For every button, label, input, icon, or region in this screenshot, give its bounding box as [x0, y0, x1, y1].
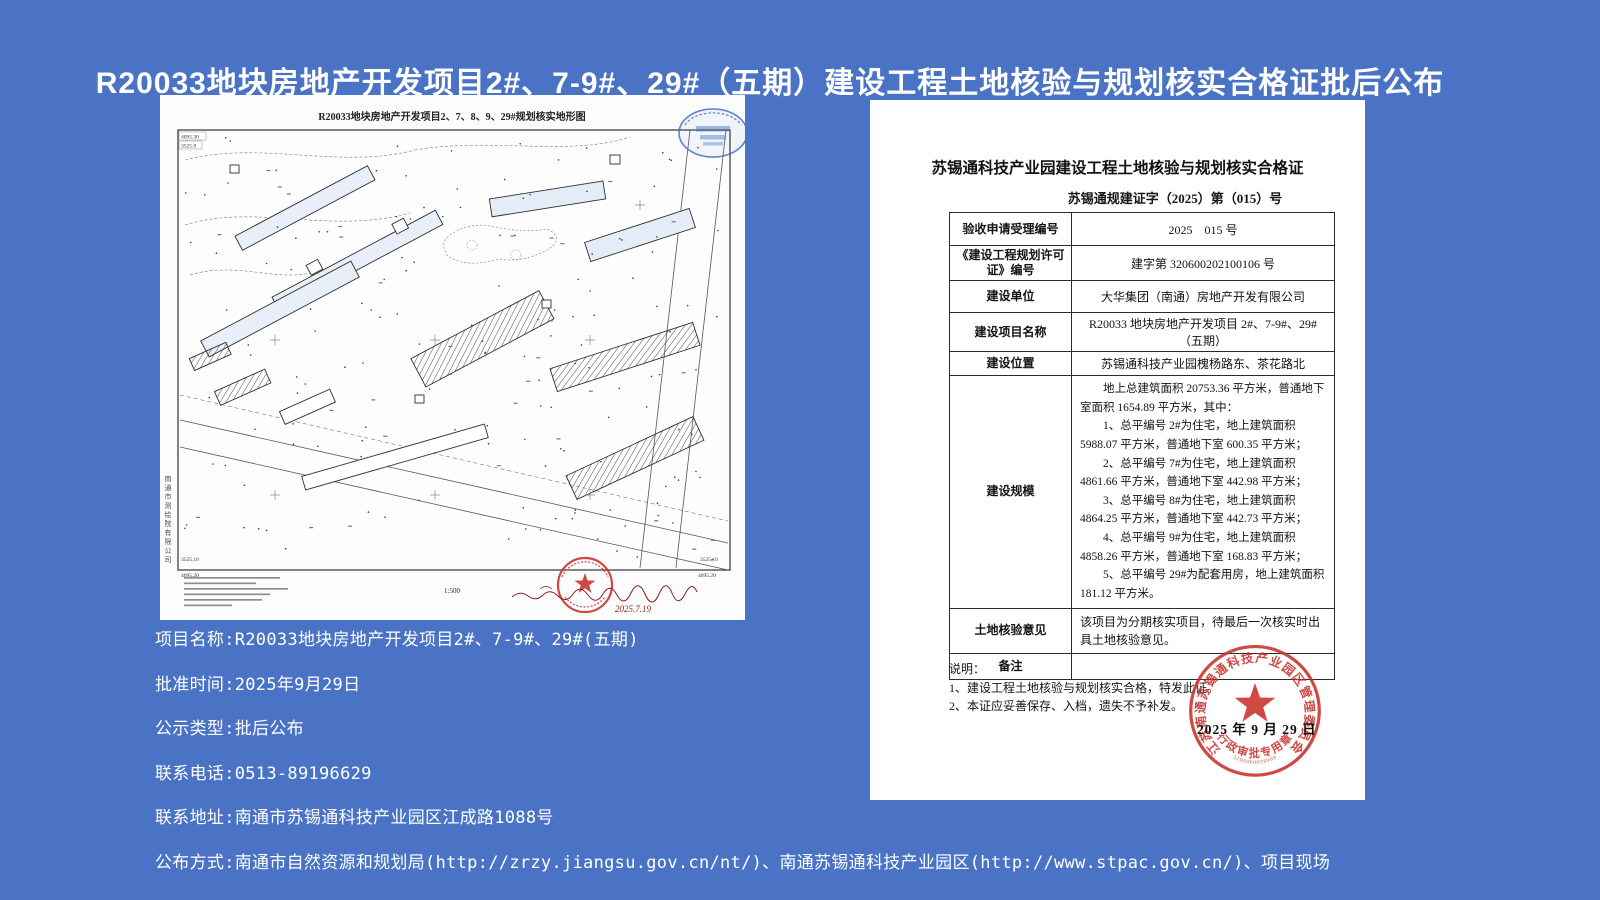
table-row: 建设规模 地上总建筑面积 20753.36 平方米，普通地下室面积 1654.8…	[950, 376, 1335, 609]
handwriting-note	[512, 586, 697, 602]
row-value: 2025 015 号	[1072, 213, 1335, 246]
scale-line: 2、总平编号 7#为住宅，地上建筑面积 4861.66 平方米，普通地下室 44…	[1080, 455, 1326, 492]
info-line-publish-channels: 公布方式:南通市自然资源和规划局(http://zrzy.jiangsu.gov…	[155, 848, 1455, 873]
table-row: 建设位置 苏锡通科技产业园槐杨路东、茶花路北	[950, 352, 1335, 376]
info-line-approval-date: 批准时间:2025年9月29日	[155, 670, 1455, 695]
row-value: 大华集团（南通）房地产开发有限公司	[1072, 281, 1335, 313]
svg-text:4095.20: 4095.20	[698, 573, 716, 579]
info-line-notice-type: 公示类型:批后公布	[155, 714, 1455, 739]
row-label: 建设单位	[950, 281, 1072, 313]
svg-text:3525.10: 3525.10	[700, 557, 718, 563]
scale-line: 5、总平编号 29#为配套用房，地上建筑面积 181.12 平方米。	[1080, 566, 1326, 603]
certificate-table: 验收申请受理编号 2025 015 号 《建设工程规划许可证》编号 建字第 32…	[949, 212, 1335, 680]
handwriting-date: 2025.7.19	[615, 604, 652, 614]
table-row: 建设单位 大华集团（南通）房地产开发有限公司	[950, 281, 1335, 313]
map-scale-label: 1:500	[444, 587, 460, 595]
info-line-phone: 联系电话:0513-89196629	[155, 759, 1455, 784]
row-value: R20033 地块房地产开发项目 2#、7-9#、29#（五期）	[1072, 313, 1335, 352]
table-row: 验收申请受理编号 2025 015 号	[950, 213, 1335, 246]
scale-line: 4、总平编号 9#为住宅，地上建筑面积 4858.26 平方米，普通地下室 16…	[1080, 529, 1326, 566]
site-plan-drawing: R20033地块房地产开发项目2、7、8、9、29#规划核实地形图	[160, 95, 745, 620]
scale-line: 3、总平编号 8#为住宅，地上建筑面积 4864.25 平方米，普通地下室 44…	[1080, 492, 1326, 529]
row-value: 苏锡通科技产业园槐杨路东、茶花路北	[1072, 352, 1335, 376]
certificate-title: 苏锡通科技产业园建设工程土地核验与规划核实合格证	[870, 156, 1365, 178]
row-label: 建设项目名称	[950, 313, 1072, 352]
certificate-number: 苏锡通规建证字（2025）第（015）号	[1010, 188, 1340, 207]
announcement-page: { "page": { "title": "R20033地块房地产开发项目2#、…	[0, 0, 1600, 900]
scale-line: 1、总平编号 2#为住宅，地上建筑面积 5988.07 平方米，普通地下室 60…	[1080, 417, 1326, 454]
site-plan-image: R20033地块房地产开发项目2、7、8、9、29#规划核实地形图	[160, 95, 745, 620]
info-line-project-name: 项目名称:R20033地块房地产开发项目2#、7-9#、29#(五期)	[155, 625, 1455, 650]
row-value: 建字第 320600202100106 号	[1072, 246, 1335, 281]
table-row: 《建设工程规划许可证》编号 建字第 320600202100106 号	[950, 246, 1335, 281]
row-label: 《建设工程规划许可证》编号	[950, 246, 1072, 281]
row-label: 建设位置	[950, 352, 1072, 376]
svg-text:4095.30: 4095.30	[181, 135, 199, 141]
row-label: 建设规模	[950, 376, 1072, 609]
legend-notes	[184, 577, 288, 606]
surveyor-stamp-blue-icon	[679, 109, 745, 157]
surveyor-company-label: 南通市测绘院有限公司	[163, 475, 173, 565]
info-line-address: 联系地址:南通市苏锡通科技产业园区江成路1088号	[155, 803, 1455, 828]
svg-text:3525.10: 3525.10	[181, 557, 199, 563]
table-row: 建设项目名称 R20033 地块房地产开发项目 2#、7-9#、29#（五期）	[950, 313, 1335, 352]
svg-text:3525.8: 3525.8	[181, 144, 196, 150]
site-plan-title: R20033地块房地产开发项目2、7、8、9、29#规划核实地形图	[318, 110, 585, 123]
row-label: 验收申请受理编号	[950, 213, 1072, 246]
row-value: 地上总建筑面积 20753.36 平方米，普通地下室面积 1654.89 平方米…	[1072, 376, 1335, 609]
scale-line: 地上总建筑面积 20753.36 平方米，普通地下室面积 1654.89 平方米…	[1080, 380, 1326, 417]
info-block: 项目名称:R20033地块房地产开发项目2#、7-9#、29#(五期) 批准时间…	[155, 625, 1455, 892]
